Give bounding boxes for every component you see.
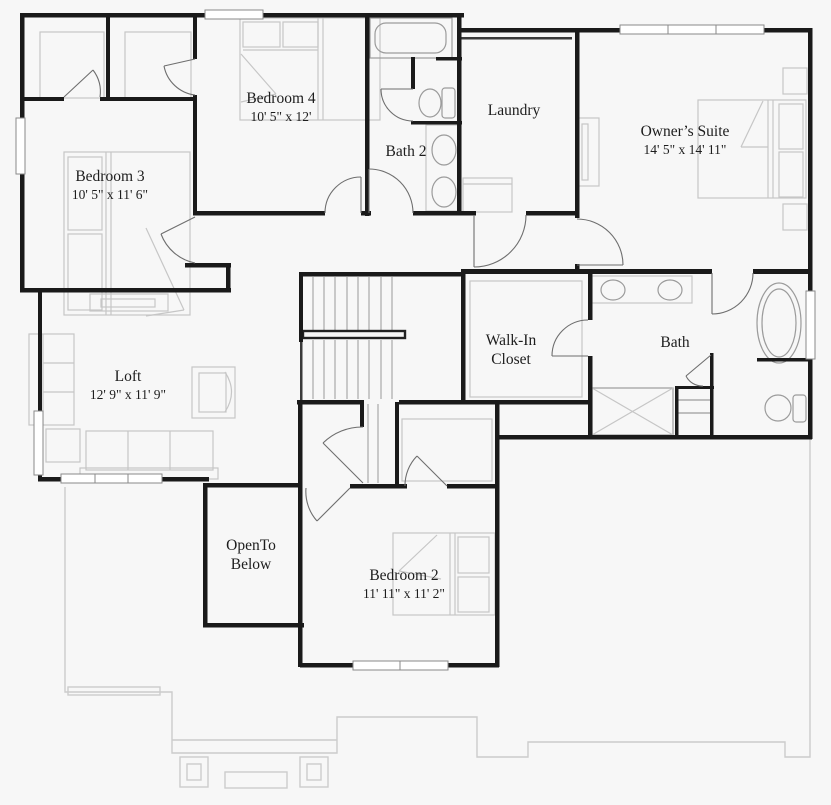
sofa-symbol-2 — [80, 431, 218, 479]
door-arc — [369, 169, 413, 213]
door-arc — [323, 427, 363, 483]
door-arc — [686, 355, 711, 386]
washer-dryer-counter — [463, 178, 512, 212]
nightstand-symbol — [783, 204, 807, 230]
room-label-loft: Loft 12' 9" x 11' 9" — [90, 368, 166, 403]
door-arc — [381, 89, 413, 121]
window-symbol — [34, 411, 43, 475]
door-arc — [474, 215, 526, 267]
room-label-bedroom-4: Bedroom 4 10' 5" x 12' — [246, 90, 315, 125]
shower-symbol — [592, 388, 673, 435]
door-arc — [577, 219, 623, 265]
linen-shelves — [678, 400, 710, 413]
room-label-walk-in-closet: Walk-In Closet — [486, 332, 536, 370]
door-arc — [164, 59, 195, 95]
first-floor-outline — [65, 439, 810, 788]
room-label-bedroom-2: Bedroom 2 11' 11" x 11' 2" — [363, 567, 445, 602]
vanity-sinks-owners-bath — [592, 276, 692, 303]
room-label-owners-suite: Owner’s Suite 14' 5" x 14' 11" — [641, 123, 730, 158]
room-label-bath-2: Bath 2 — [386, 143, 427, 162]
room-label-bedroom-3: Bedroom 3 10' 5" x 11' 6" — [72, 168, 148, 203]
door-arc — [306, 488, 350, 521]
door-arc — [325, 177, 361, 213]
stairs-symbol — [303, 277, 405, 483]
sink-symbol-bath2 — [426, 125, 461, 211]
window-symbol — [353, 661, 448, 670]
toilet-symbol-owners-bath — [765, 395, 806, 422]
window-symbol — [806, 291, 815, 359]
room-label-open-to-below: OpenTo Below — [226, 537, 276, 575]
window-symbol — [620, 25, 764, 34]
tub-symbol-bath2 — [370, 18, 452, 58]
door-arc — [712, 273, 753, 314]
room-label-laundry: Laundry — [488, 102, 541, 121]
door-arc — [64, 70, 100, 97]
tub-symbol-owners-bath — [757, 283, 801, 363]
toilet-symbol-bath2 — [419, 88, 455, 118]
armchair-symbol — [192, 367, 235, 418]
window-symbol — [61, 474, 162, 483]
room-label-bath: Bath — [660, 334, 689, 353]
side-table-symbol — [46, 429, 80, 462]
window-symbol — [205, 10, 263, 19]
dresser-symbol — [578, 118, 599, 186]
window-symbol — [16, 118, 25, 174]
floor-plan: Bedroom 3 10' 5" x 11' 6" Bedroom 4 10' … — [0, 0, 831, 805]
nightstand-symbol — [783, 68, 807, 94]
